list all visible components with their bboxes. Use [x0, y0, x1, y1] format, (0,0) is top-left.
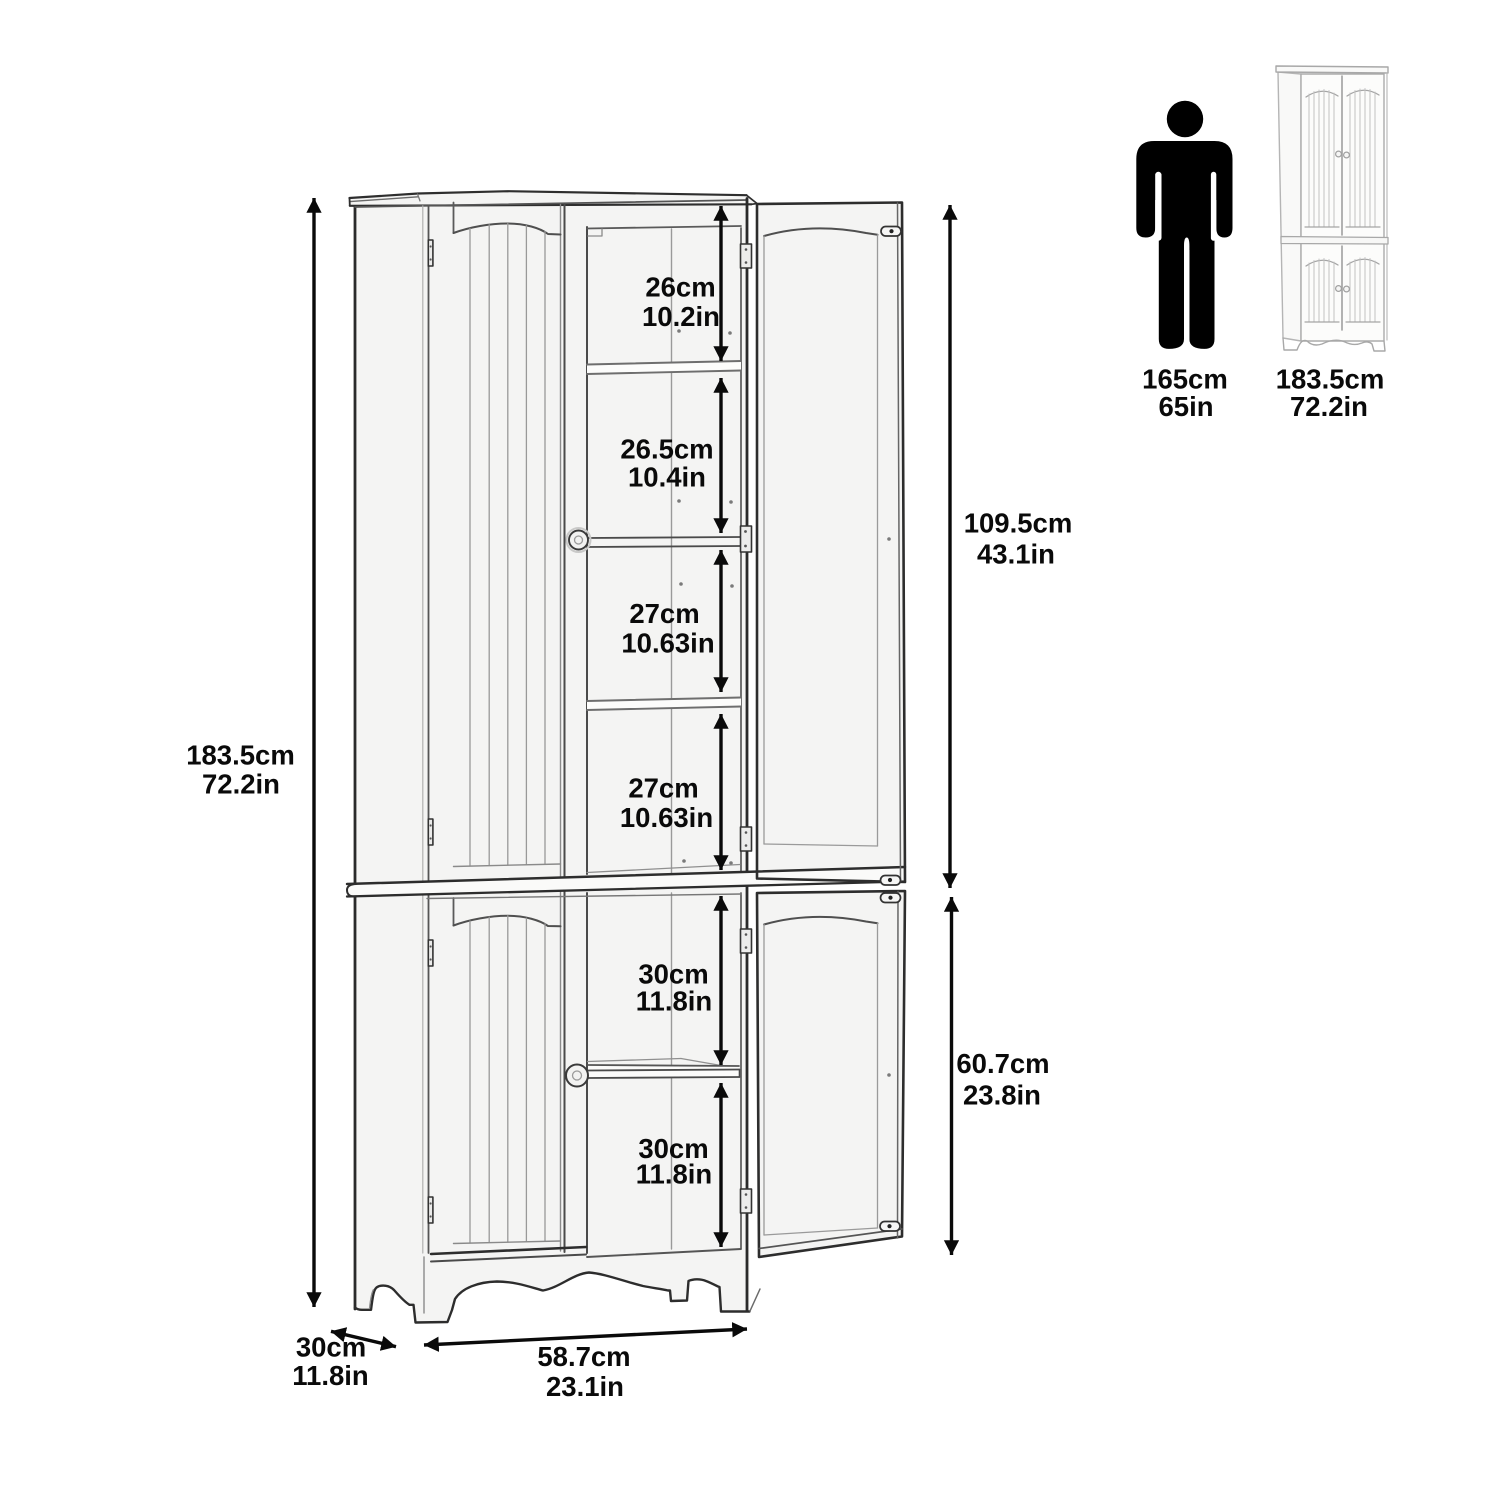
svg-text:72.2in: 72.2in [1290, 391, 1368, 422]
svg-text:10.4in: 10.4in [628, 462, 706, 493]
svg-text:10.63in: 10.63in [621, 628, 714, 659]
svg-text:183.5cm: 183.5cm [1276, 364, 1385, 395]
svg-text:43.1in: 43.1in [977, 539, 1055, 570]
svg-text:23.1in: 23.1in [546, 1371, 624, 1402]
svg-text:26.5cm: 26.5cm [620, 434, 713, 465]
svg-text:30cm: 30cm [296, 1332, 366, 1363]
svg-text:27cm: 27cm [629, 598, 699, 629]
svg-text:109.5cm: 109.5cm [964, 508, 1073, 539]
svg-text:165cm: 165cm [1142, 364, 1228, 395]
svg-text:10.2in: 10.2in [642, 301, 720, 332]
svg-text:11.8in: 11.8in [292, 1360, 368, 1391]
svg-text:26cm: 26cm [645, 272, 715, 303]
svg-text:23.8in: 23.8in [963, 1080, 1041, 1111]
svg-text:65in: 65in [1158, 391, 1213, 422]
svg-text:72.2in: 72.2in [202, 769, 280, 800]
svg-text:60.7cm: 60.7cm [956, 1048, 1049, 1079]
svg-text:11.8in: 11.8in [636, 986, 712, 1017]
svg-text:11.8in: 11.8in [636, 1159, 712, 1190]
svg-text:58.7cm: 58.7cm [537, 1341, 630, 1372]
svg-text:27cm: 27cm [628, 773, 698, 804]
svg-text:183.5cm: 183.5cm [186, 740, 295, 771]
svg-text:10.63in: 10.63in [620, 802, 713, 833]
